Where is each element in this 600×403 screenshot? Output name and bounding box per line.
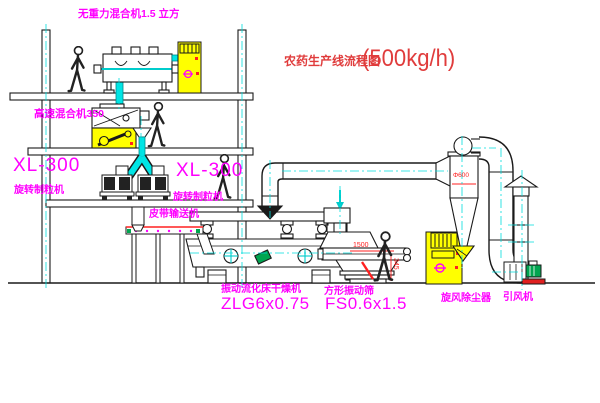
label-granulator-right-name: 旋转制粒机 xyxy=(173,193,223,204)
label-fan: 引风机 xyxy=(503,293,533,304)
label-high-speed-mixer: 高速混合机350 xyxy=(34,109,104,120)
dimension-cyclone-diameter: Φ600 xyxy=(453,172,469,179)
page-title-capacity: (500kg/h) xyxy=(362,45,455,73)
control-cabinet-top xyxy=(178,42,201,93)
label-granulator-right-model: XL-300 xyxy=(176,161,243,181)
dimension-sieve-length: 1500 xyxy=(353,242,369,249)
dimension-sieve-outlet-height: 345 xyxy=(392,258,399,270)
pesticide-line-flow-diagram: 农药生产线流程图 (500kg/h) 无重力混合机1.5 立方 高速混合机350… xyxy=(0,0,600,403)
label-gravity-mixer: 无重力混合机1.5 立方 xyxy=(78,9,180,20)
label-granulator-left-name: 旋转制粒机 xyxy=(14,186,64,197)
label-granulator-left-model: XL-300 xyxy=(13,156,80,176)
label-sieve-model: FS0.6x1.5 xyxy=(325,295,407,313)
granulator-right xyxy=(136,166,170,200)
label-cyclone: 旋风除尘器 xyxy=(441,294,491,305)
label-dryer-model: ZLG6x0.75 xyxy=(221,295,310,313)
worker-2nd-floor xyxy=(149,103,165,146)
induced-draft-fan xyxy=(504,261,545,284)
label-belt-conveyor: 皮带输送机 xyxy=(149,210,199,221)
control-cabinet-right xyxy=(426,232,462,284)
worker-top-floor xyxy=(69,47,85,91)
exhaust-duct xyxy=(262,163,444,206)
